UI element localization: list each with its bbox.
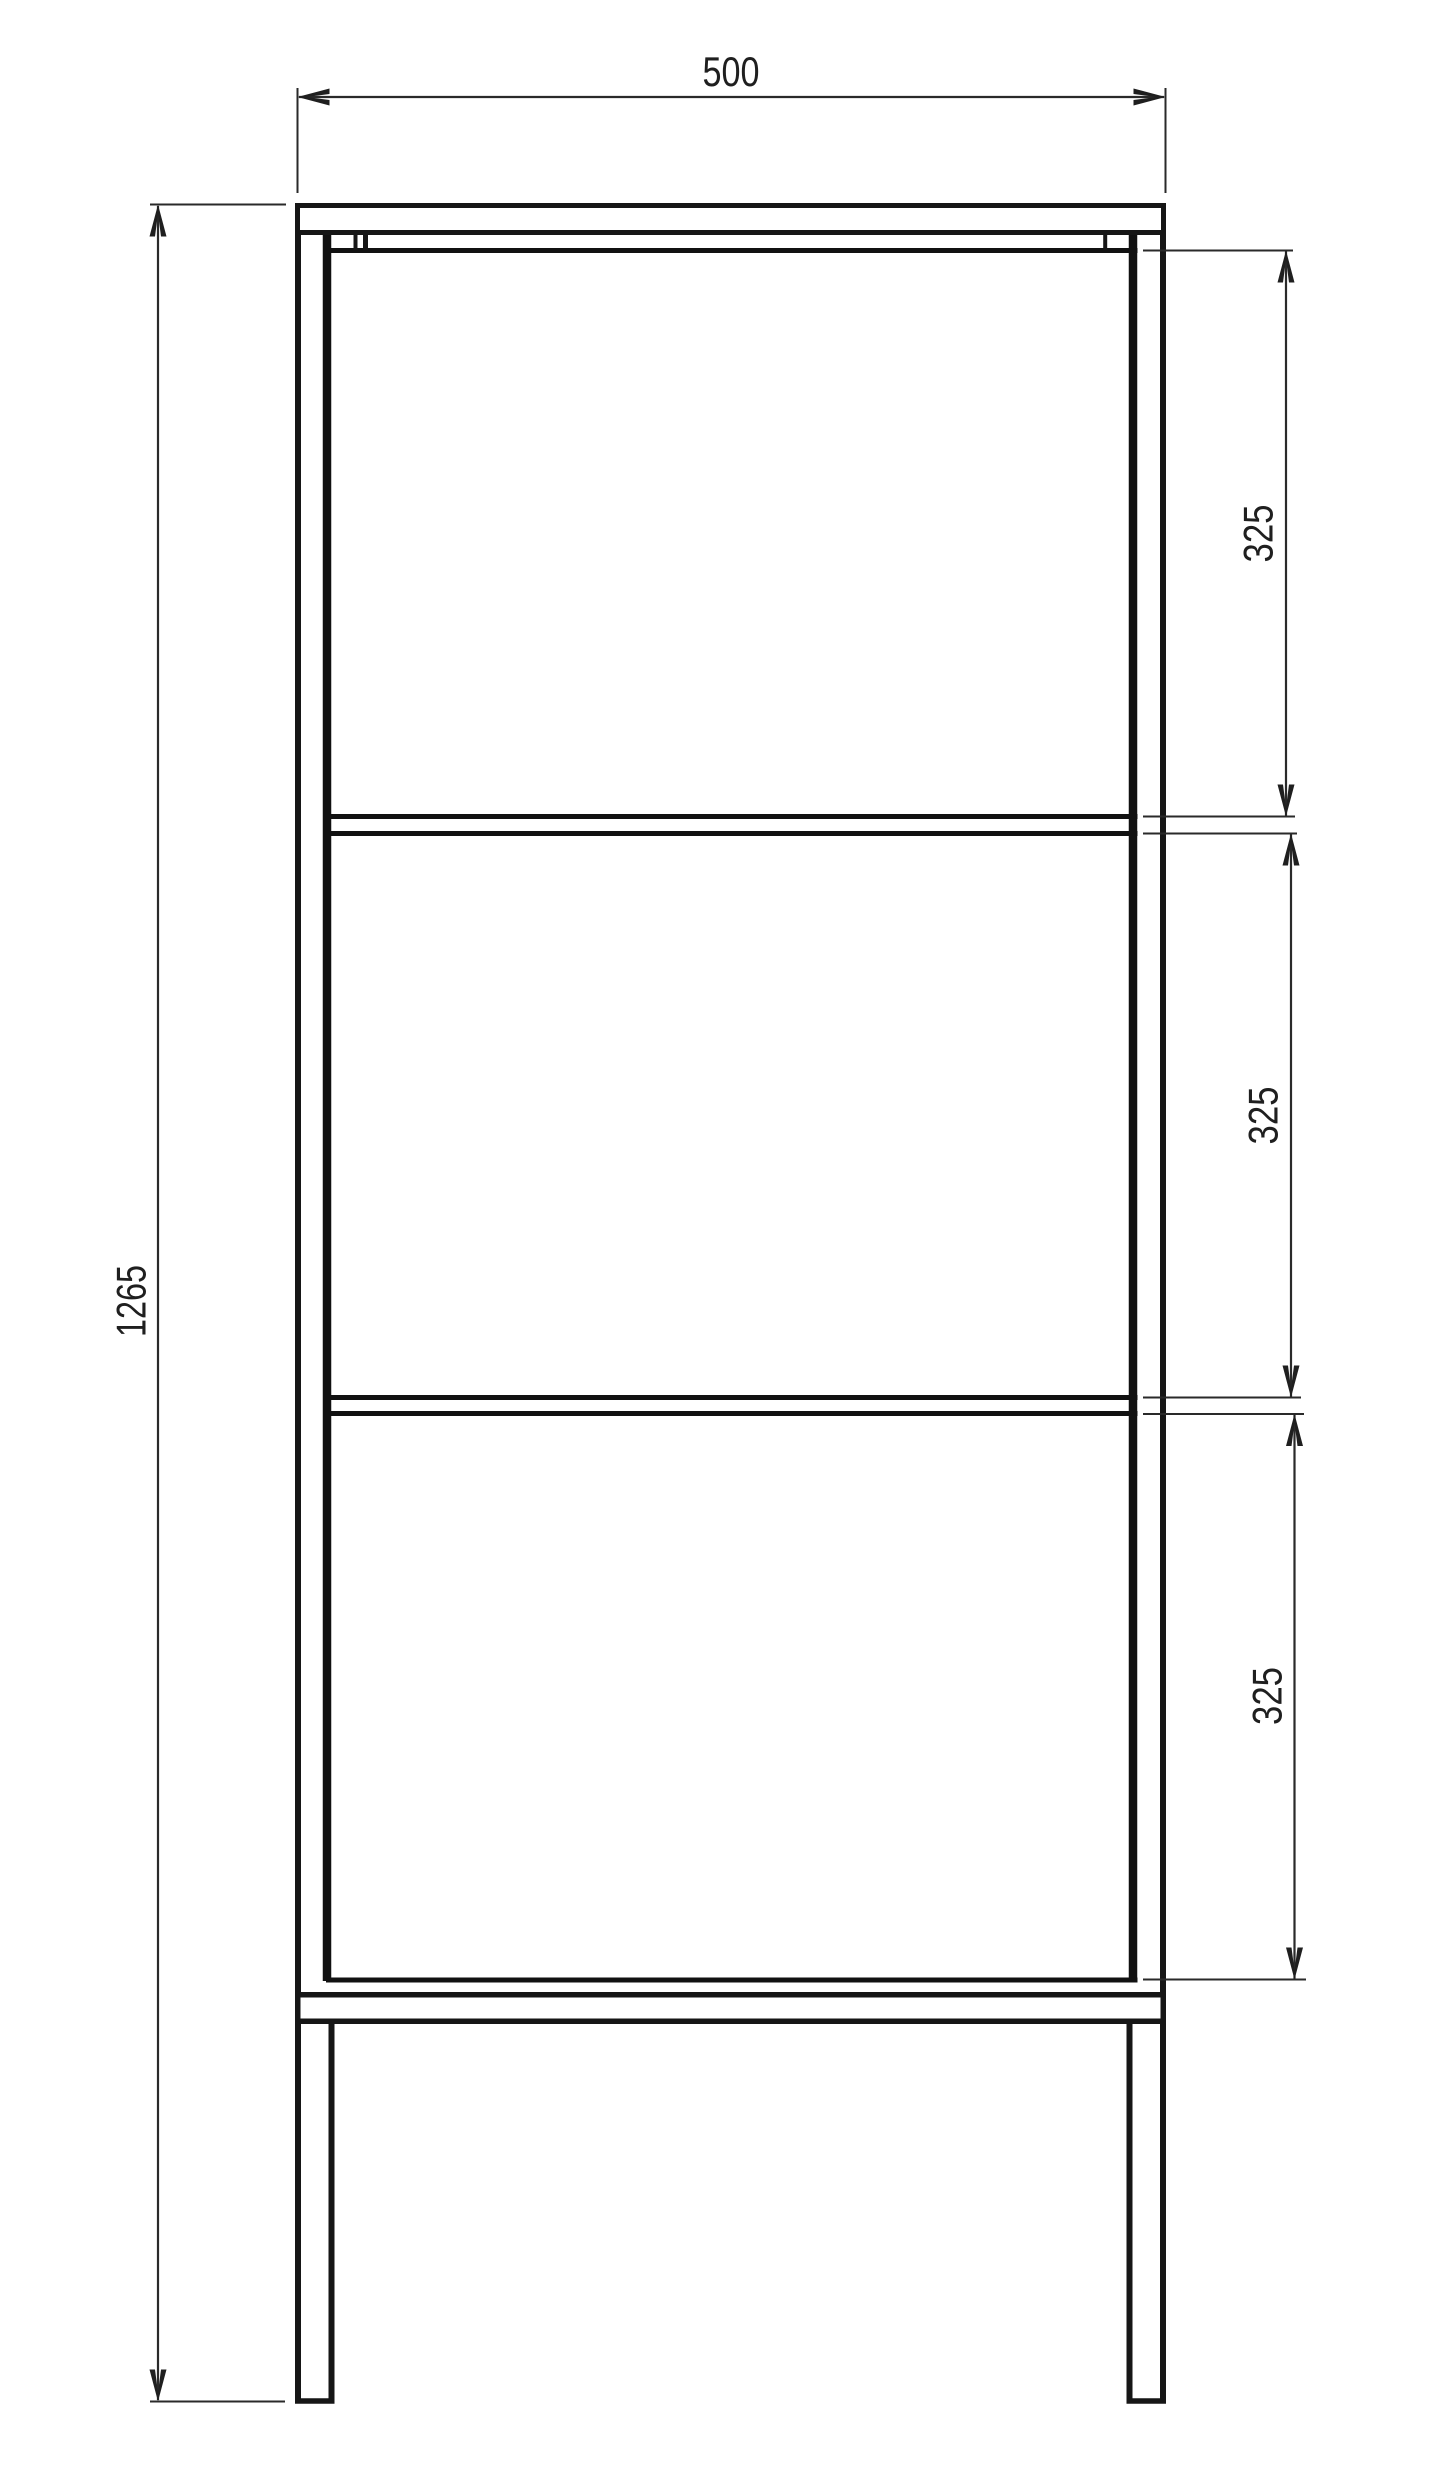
svg-text:325: 325	[1240, 1087, 1287, 1145]
svg-text:325: 325	[1244, 1667, 1291, 1725]
svg-text:1265: 1265	[108, 1265, 155, 1337]
svg-text:500: 500	[703, 48, 760, 95]
svg-text:325: 325	[1235, 505, 1282, 563]
